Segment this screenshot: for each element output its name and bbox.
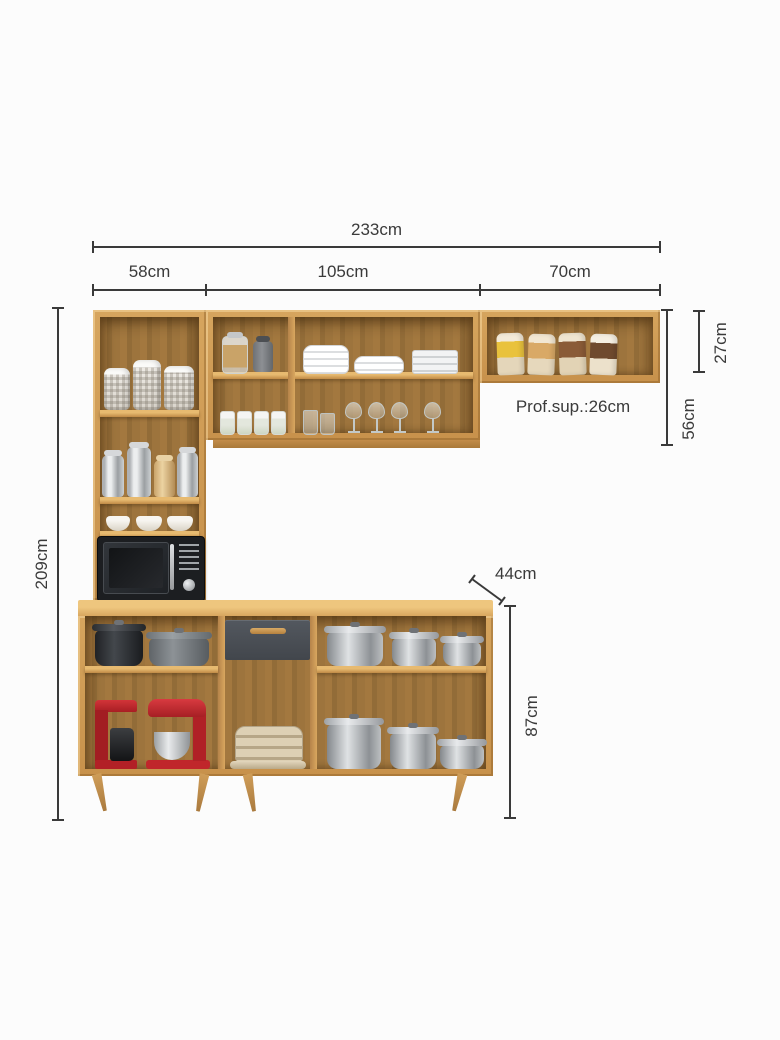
cabinet-leg: [448, 773, 469, 813]
tower-shelf-1: [100, 410, 199, 417]
steel-pot: [327, 632, 383, 666]
snack-package: [558, 333, 586, 376]
dim-label-right-width: 70cm: [480, 262, 660, 282]
microwave-control-panel: [179, 544, 199, 574]
microwave-door: [103, 542, 169, 594]
base-divider-right: [310, 616, 317, 769]
cookie-jar: [222, 336, 248, 374]
base-divider-left: [218, 616, 225, 769]
wine-glass: [424, 402, 441, 419]
dim-line-top-shelf-height: [698, 311, 700, 372]
base-shelf-right: [317, 666, 486, 673]
dim-tick-58-105: [205, 284, 207, 296]
dim-label-base-height: 87cm: [522, 688, 542, 744]
spice-jar: [237, 411, 252, 435]
dim-label-wall-cabinet-height: 56cm: [679, 391, 699, 447]
dim-line-total-width: [93, 246, 660, 248]
microwave-knob: [183, 579, 195, 591]
dim-label-upper-depth: Prof.sup.:26cm: [503, 397, 643, 417]
steel-pot: [443, 642, 481, 666]
mixer-head: [148, 699, 206, 717]
spice-jar: [220, 411, 235, 435]
steel-stockpot: [327, 724, 381, 769]
tower-shelf-2: [100, 497, 199, 504]
beige-plate: [230, 761, 306, 769]
wine-glass: [391, 402, 408, 419]
plate-stack: [354, 356, 404, 374]
ceramic-canister: [104, 368, 130, 410]
dim-line-total-height: [57, 308, 59, 820]
dim-label-total-height: 209cm: [32, 526, 52, 602]
dim-label-middle-width: 105cm: [206, 262, 480, 282]
coffee-maker: [95, 700, 137, 769]
product-dimension-diagram: 233cm 58cm 105cm 70cm 209cm 56cm 27cm Pr…: [0, 0, 780, 1040]
dim-label-top-shelf-height: 27cm: [711, 315, 731, 371]
black-pot: [95, 630, 143, 666]
metal-canister: [127, 447, 151, 497]
microwave: [97, 536, 205, 602]
drawer-handle: [250, 628, 286, 634]
snack-package: [496, 333, 524, 376]
dim-line-wall-cabinet-height: [666, 310, 668, 445]
dim-label-left-width: 58cm: [93, 262, 206, 282]
wall-cabinet-underboard: [213, 440, 480, 448]
mixer-bowl: [154, 732, 190, 760]
wine-glass: [368, 402, 385, 419]
dim-tick-105-70: [479, 284, 481, 296]
mixer-base: [146, 760, 210, 769]
dim-line-base-height: [509, 606, 511, 818]
base-shelf-left: [85, 666, 218, 673]
square-plate-stack: [412, 350, 458, 374]
cabinet-leg: [241, 773, 260, 813]
stand-mixer: [146, 699, 210, 769]
glass-tumbler: [320, 413, 335, 435]
cabinet-leg: [192, 773, 211, 813]
beige-bowl-stack: [235, 726, 303, 765]
coffee-maker-column: [95, 710, 108, 761]
steel-pot: [392, 638, 436, 666]
metal-canister: [177, 452, 198, 497]
ceramic-canister: [164, 366, 194, 410]
microwave-handle: [170, 544, 174, 590]
dim-label-base-depth: 44cm: [495, 564, 537, 584]
metal-canister: [102, 455, 124, 497]
wall-cabinet-divider: [288, 317, 295, 433]
spice-jar: [254, 411, 269, 435]
dim-line-section-widths: [93, 289, 660, 291]
bowl-stack: [303, 345, 349, 374]
wine-glass: [345, 402, 362, 419]
drawer: [225, 620, 310, 660]
steel-stockpot: [390, 733, 436, 769]
coffee-maker-base: [95, 760, 137, 769]
gray-jar: [253, 341, 273, 372]
glass-tumbler: [303, 410, 318, 435]
cabinet-leg: [90, 773, 111, 813]
snack-package: [589, 334, 617, 376]
wood-canister: [154, 460, 175, 497]
coffee-carafe: [110, 728, 134, 761]
spice-jar: [271, 411, 286, 435]
ceramic-canister: [133, 360, 161, 410]
snack-package: [527, 334, 555, 376]
gray-casserole: [149, 638, 209, 666]
dim-label-total-width: 233cm: [93, 220, 660, 240]
steel-low-pot: [440, 745, 484, 769]
